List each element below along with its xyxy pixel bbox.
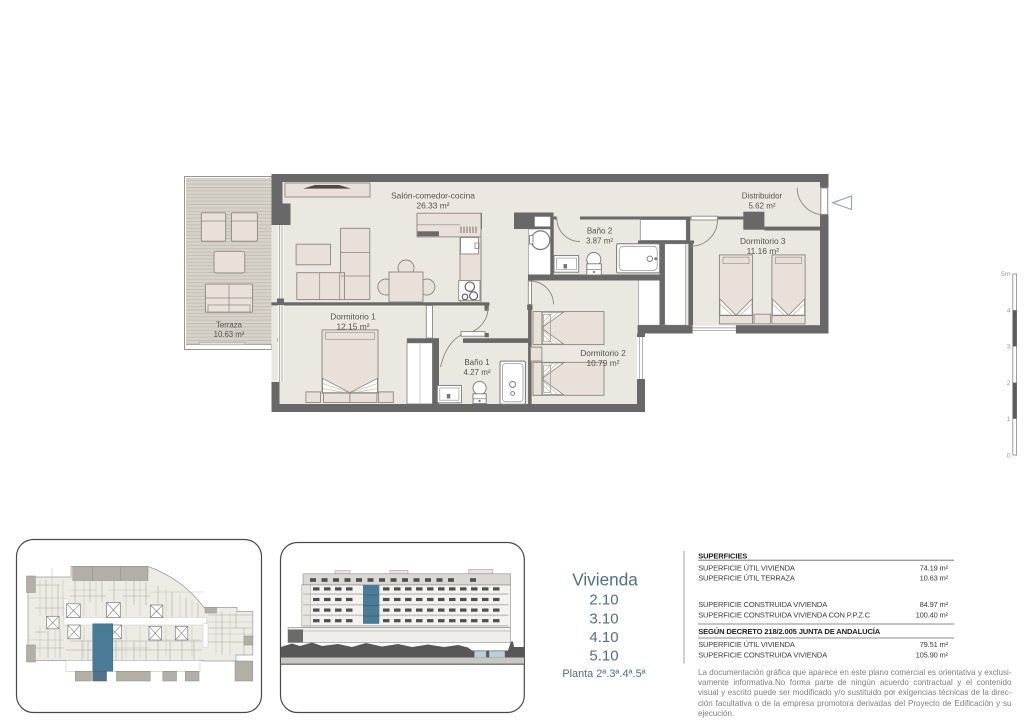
svg-text:SUPERFICIE CONSTRUIDA VIVIENDA: SUPERFICIE CONSTRUIDA VIVIENDA	[698, 651, 827, 660]
svg-text:74.19 m²: 74.19 m²	[920, 563, 949, 572]
svg-text:10.79 m²: 10.79 m²	[586, 358, 619, 368]
svg-text:Dormitorio 2: Dormitorio 2	[580, 348, 626, 358]
svg-text:12.15 m²: 12.15 m²	[336, 322, 369, 332]
svg-text:26.33 m²: 26.33 m²	[416, 201, 449, 211]
svg-text:Vivienda: Vivienda	[572, 570, 638, 590]
svg-text:4.10: 4.10	[589, 629, 618, 646]
svg-text:Dormitorio 3: Dormitorio 3	[740, 236, 786, 246]
svg-text:1: 1	[1007, 416, 1011, 423]
svg-text:11.16 m²: 11.16 m²	[747, 246, 780, 256]
svg-text:SEGÚN DECRETO 218/2.005 JUNTA: SEGÚN DECRETO 218/2.005 JUNTA DE ANDALUC…	[698, 627, 881, 636]
svg-text:100.40 m²: 100.40 m²	[916, 611, 949, 620]
svg-text:10.63 m²: 10.63 m²	[920, 574, 949, 583]
svg-text:4: 4	[1007, 308, 1011, 315]
svg-text:0: 0	[1007, 452, 1011, 459]
svg-text:3.87 m²: 3.87 m²	[586, 237, 613, 246]
svg-text:5.62 m²: 5.62 m²	[748, 202, 775, 211]
svg-text:84.97 m²: 84.97 m²	[920, 600, 949, 609]
svg-text:Baño 2: Baño 2	[587, 227, 613, 236]
svg-text:SUPERFICIE CONSTRUIDA VIVIENDA: SUPERFICIE CONSTRUIDA VIVIENDA CON P.P.Z…	[698, 611, 871, 620]
svg-text:Distribuidor: Distribuidor	[742, 192, 783, 201]
svg-text:105.90 m²: 105.90 m²	[916, 651, 949, 660]
svg-text:2: 2	[1007, 380, 1011, 387]
svg-text:SUPERFICIE ÚTIL TERRAZA: SUPERFICIE ÚTIL TERRAZA	[698, 574, 795, 583]
svg-text:Baño 1: Baño 1	[464, 358, 490, 367]
svg-text:3.10: 3.10	[589, 610, 618, 627]
svg-text:SUPERFICIE ÚTIL VIVIENDA: SUPERFICIE ÚTIL VIVIENDA	[698, 563, 795, 572]
svg-text:Planta 2ª.3ª.4ª.5ª: Planta 2ª.3ª.4ª.5ª	[562, 668, 646, 680]
svg-text:SUPERFICIE CONSTRUIDA VIVIENDA: SUPERFICIE CONSTRUIDA VIVIENDA	[698, 600, 827, 609]
svg-text:Terraza: Terraza	[216, 321, 243, 330]
svg-text:SUPERFICIES: SUPERFICIES	[698, 551, 747, 560]
svg-text:10.63 m²: 10.63 m²	[214, 330, 245, 339]
svg-text:4.27 m²: 4.27 m²	[463, 368, 490, 377]
svg-text:SUPERFICIE ÚTIL VIVIENDA: SUPERFICIE ÚTIL VIVIENDA	[698, 640, 795, 649]
svg-text:3: 3	[1007, 344, 1011, 351]
svg-text:79.51 m²: 79.51 m²	[920, 640, 949, 649]
svg-text:5m: 5m	[1001, 271, 1011, 278]
svg-text:Dormitorio 1: Dormitorio 1	[330, 312, 376, 322]
svg-text:Salón-comedor-cocina: Salón-comedor-cocina	[391, 191, 475, 201]
svg-text:2.10: 2.10	[589, 592, 618, 609]
svg-text:5.10: 5.10	[589, 648, 618, 665]
